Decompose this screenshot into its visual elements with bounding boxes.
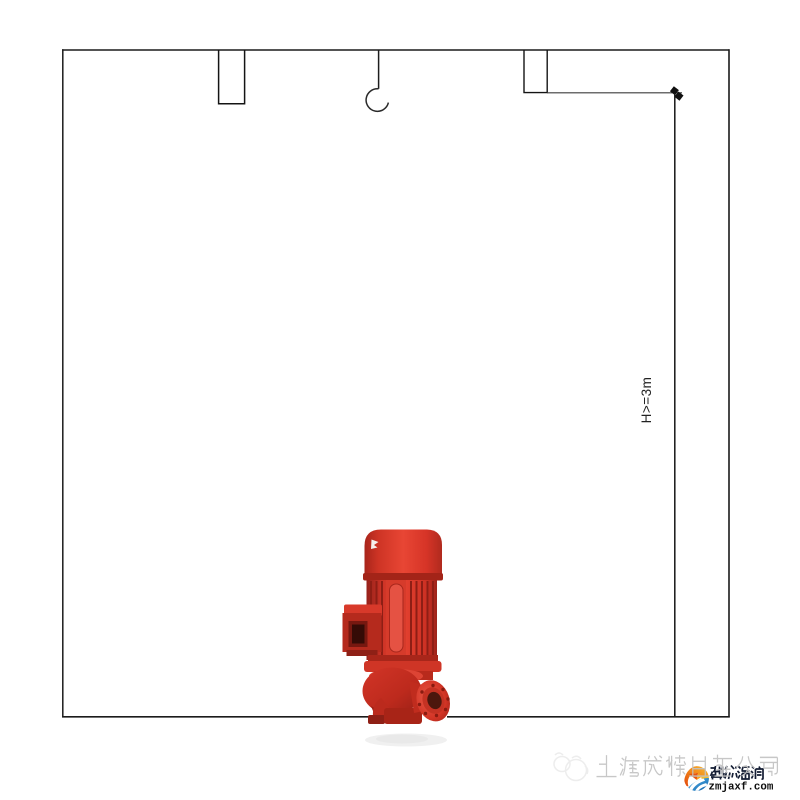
svg-text:zmjaxf.com: zmjaxf.com	[709, 782, 774, 794]
svg-text:H>=3m: H>=3m	[639, 377, 654, 424]
